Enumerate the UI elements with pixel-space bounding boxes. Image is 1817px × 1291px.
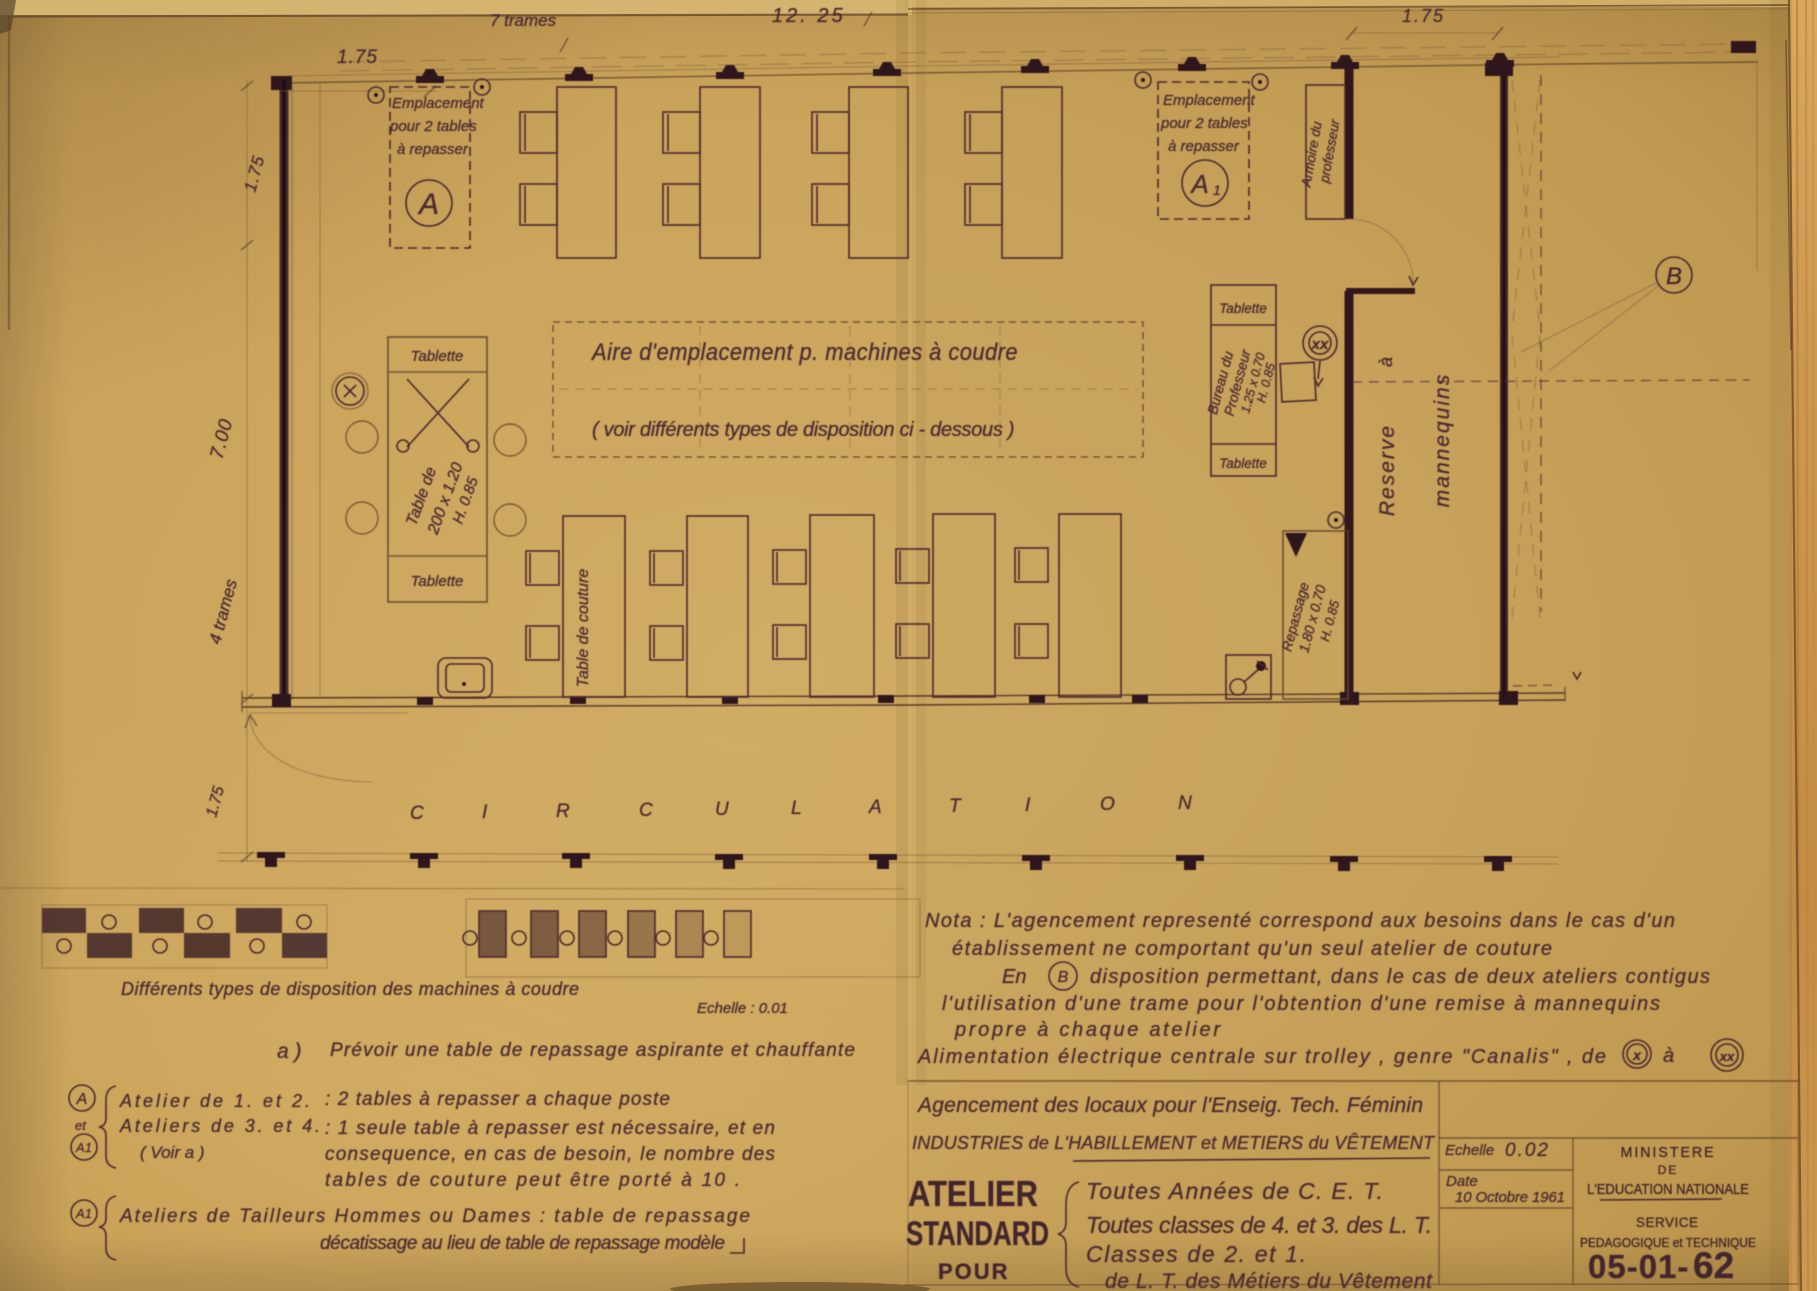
svg-text:A1: A1 (75, 1206, 92, 1221)
svg-text:C: C (639, 800, 653, 821)
svg-text:A: A (76, 1091, 88, 1108)
svg-text:de L. T. des Métiers du Vêteme: de L. T. des Métiers du Vêtement (1105, 1270, 1433, 1291)
svg-text:Nota : L'agencement represe: Nota : L'agencement representé correspon… (925, 910, 1675, 932)
svg-text:Ateliers de 3. et 4.: Ateliers de 3. et 4. (119, 1116, 320, 1136)
svg-text:Prévoir une table de repassage: Prévoir une table de repassage aspirante… (330, 1040, 855, 1061)
svg-text:Tablette: Tablette (1219, 301, 1267, 316)
svg-text:et: et (75, 1118, 87, 1133)
svg-text:consequence, en cas de besoin,: consequence, en cas de besoin, le nombre… (325, 1144, 776, 1165)
svg-text:SERVICE: SERVICE (1636, 1215, 1700, 1230)
svg-text:à: à (1376, 357, 1396, 367)
svg-text:mannequins: mannequins (1431, 373, 1454, 507)
svg-text:Tablette: Tablette (411, 573, 464, 590)
svg-text:à repasser: à repasser (397, 141, 469, 158)
svg-text:Classes de 2. et 1.: Classes de 2. et 1. (1086, 1241, 1306, 1267)
svg-text:I: I (1025, 795, 1031, 816)
svg-text:Table de couture: Table de couture (575, 569, 592, 688)
svg-text:A: A (868, 797, 882, 818)
svg-text:L'EDUCATION NATIONALE: L'EDUCATION NATIONALE (1587, 1182, 1749, 1198)
svg-text:Tablette: Tablette (1219, 456, 1267, 471)
svg-text:0.02: 0.02 (1505, 1140, 1550, 1161)
svg-text:Aire d'emplacement p. machines: Aire d'emplacement p. machines à coudre (590, 339, 1018, 366)
svg-text:établissement ne comportant qu: établissement ne comportant qu'un seul a… (952, 938, 1552, 960)
svg-text:décatissage au lieu de table d: décatissage au lieu de table de repassag… (320, 1233, 725, 1254)
svg-text:: 1 seule table à repasser es: : 1 seule table à repasser est nécessair… (325, 1118, 775, 1139)
svg-text:A: A (417, 188, 439, 221)
svg-text:DE: DE (1658, 1163, 1679, 1177)
svg-text:Date: Date (1446, 1173, 1478, 1190)
svg-text:x: x (1632, 1047, 1642, 1063)
svg-text:disposition permettant, dans l: disposition permettant, dans le cas de d… (1090, 966, 1710, 988)
svg-text:En: En (1002, 966, 1026, 988)
svg-text:B: B (1666, 263, 1682, 290)
svg-text:Toutes classes de 4. et 3. des: Toutes classes de 4. et 3. des L. T. (1086, 1212, 1432, 1238)
svg-text:12. 25: 12. 25 (772, 5, 846, 27)
svg-text:MINISTERE: MINISTERE (1621, 1144, 1716, 1161)
svg-text:à: à (1663, 1045, 1674, 1067)
svg-text:STANDARD: STANDARD (906, 1215, 1049, 1253)
svg-text:INDUSTRIES de L'HABILLEMENT et: INDUSTRIES de L'HABILLEMENT et METIERS d… (912, 1133, 1436, 1153)
svg-text:POUR: POUR (938, 1259, 1010, 1284)
svg-text:A1: A1 (75, 1140, 92, 1155)
svg-text:Emplacement: Emplacement (1163, 92, 1256, 109)
svg-text:10 Octobre 1961: 10 Octobre 1961 (1455, 1189, 1565, 1206)
svg-text:B: B (1058, 969, 1069, 986)
svg-text:7 trames: 7 trames (490, 11, 557, 30)
svg-text:T: T (949, 796, 962, 817)
svg-text:( voir différents types de dis: ( voir différents types de disposition c… (592, 419, 1015, 441)
svg-text:Tablette: Tablette (411, 348, 464, 365)
svg-text:Echelle : 0.01: Echelle : 0.01 (697, 1000, 788, 1017)
svg-text:Emplacement: Emplacement (392, 95, 485, 112)
svg-text:propre à chaque atelier: propre à chaque atelier (954, 1019, 1221, 1041)
svg-text:a ): a ) (277, 1040, 302, 1063)
svg-text:N: N (1178, 793, 1192, 814)
svg-text:Ateliers de Tailleurs Hommes: Ateliers de Tailleurs Hommes ou Dames : … (119, 1206, 750, 1227)
svg-text:pour 2 tables: pour 2 tables (389, 118, 477, 135)
svg-text:Echelle: Echelle (1445, 1142, 1494, 1159)
svg-text:62: 62 (1693, 1245, 1734, 1286)
svg-text:xx: xx (1719, 1049, 1735, 1064)
svg-text:R: R (556, 801, 570, 822)
svg-text:U: U (715, 799, 729, 820)
svg-text:Différents types de dispositio: Différents types de disposition des mach… (121, 979, 579, 999)
svg-text:pour 2 tables: pour 2 tables (1160, 115, 1248, 132)
svg-text:Agencement des locaux pour l'E: Agencement des locaux pour l'Enseig. Tec… (916, 1094, 1423, 1117)
svg-text:1.75: 1.75 (337, 47, 378, 68)
svg-text:L: L (791, 798, 802, 819)
svg-text:Alimentation électrique centra: Alimentation électrique centrale sur tro… (917, 1046, 1606, 1068)
svg-text:Toutes Années de C. E. T.: Toutes Années de C. E. T. (1086, 1178, 1383, 1204)
svg-text:xx: xx (1311, 336, 1329, 353)
svg-text:O: O (1100, 794, 1115, 815)
svg-text:( Voir a ): ( Voir a ) (140, 1143, 205, 1162)
svg-text:Reserve: Reserve (1376, 424, 1399, 516)
svg-text:à repasser: à repasser (1168, 138, 1240, 155)
svg-text:I: I (482, 802, 488, 823)
svg-text:A: A (1189, 169, 1208, 199)
svg-text:l'utilisation d'une trame pour: l'utilisation d'une trame pour l'obtenti… (942, 993, 1660, 1015)
svg-text:1.75: 1.75 (1402, 6, 1445, 26)
svg-text:1: 1 (1213, 182, 1221, 198)
svg-text:C: C (410, 803, 424, 824)
svg-text:05-01-: 05-01- (1588, 1248, 1689, 1285)
svg-text:ATELIER: ATELIER (908, 1173, 1038, 1214)
svg-text:: 2 tables à repasser a chaqu: : 2 tables à repasser a chaque poste (325, 1089, 670, 1110)
